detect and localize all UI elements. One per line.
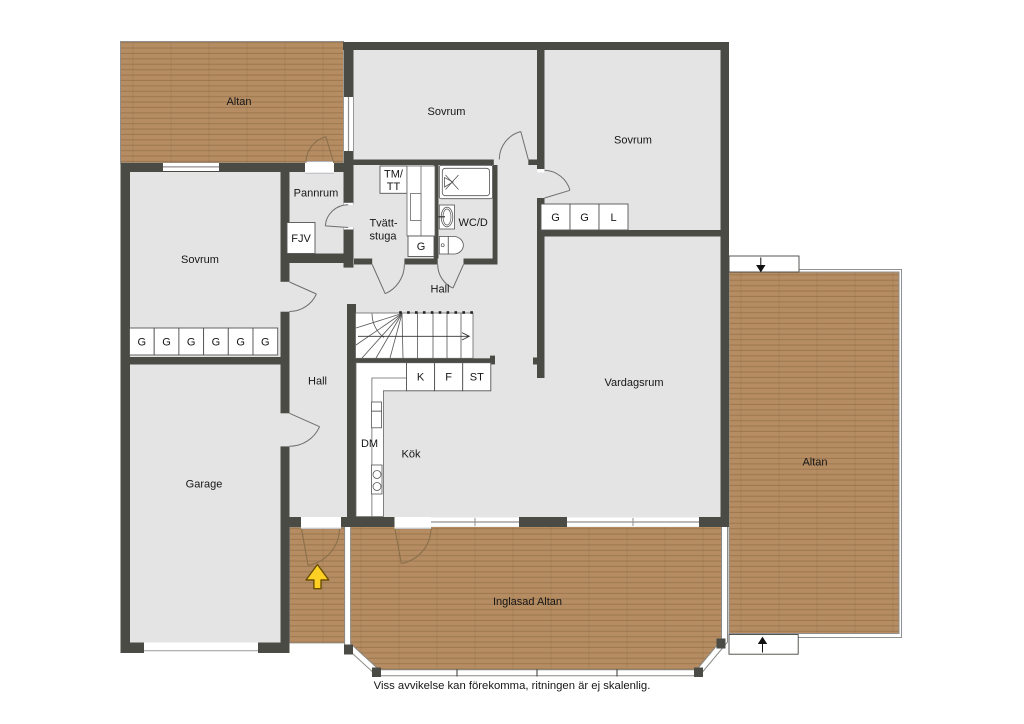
- svg-text:G: G: [551, 212, 560, 224]
- svg-text:G: G: [138, 337, 147, 349]
- svg-text:G: G: [162, 337, 171, 349]
- svg-text:Hall: Hall: [308, 376, 327, 388]
- svg-text:K: K: [417, 372, 425, 384]
- svg-text:G: G: [236, 337, 245, 349]
- svg-text:WC/D: WC/D: [459, 217, 488, 229]
- svg-text:Vardagsrum: Vardagsrum: [604, 377, 663, 389]
- svg-text:Kök: Kök: [402, 449, 421, 461]
- svg-text:Sovrum: Sovrum: [614, 135, 652, 147]
- svg-text:FJV: FJV: [291, 233, 311, 245]
- svg-text:G: G: [417, 241, 426, 253]
- svg-text:stuga: stuga: [370, 231, 398, 243]
- svg-text:Tvätt-: Tvätt-: [369, 218, 397, 230]
- svg-text:Hall: Hall: [431, 284, 450, 296]
- svg-text:Sovrum: Sovrum: [181, 254, 219, 266]
- svg-text:Inglasad Altan: Inglasad Altan: [493, 596, 562, 608]
- svg-text:Sovrum: Sovrum: [428, 106, 466, 118]
- svg-text:ST: ST: [470, 372, 484, 384]
- svg-text:G: G: [212, 337, 221, 349]
- svg-text:TT: TT: [387, 181, 401, 193]
- svg-text:G: G: [261, 337, 270, 349]
- svg-text:Altan: Altan: [802, 457, 827, 469]
- svg-text:F: F: [445, 372, 452, 384]
- svg-text:DM: DM: [361, 438, 378, 450]
- svg-text:Viss avvikelse kan förekomma,: Viss avvikelse kan förekomma, ritningen …: [374, 680, 651, 692]
- svg-text:Garage: Garage: [186, 479, 223, 491]
- svg-text:L: L: [610, 212, 616, 224]
- svg-text:G: G: [580, 212, 589, 224]
- svg-text:Altan: Altan: [226, 96, 251, 108]
- svg-text:G: G: [187, 337, 196, 349]
- svg-text:Pannrum: Pannrum: [294, 188, 339, 200]
- svg-text:TM/: TM/: [384, 169, 404, 181]
